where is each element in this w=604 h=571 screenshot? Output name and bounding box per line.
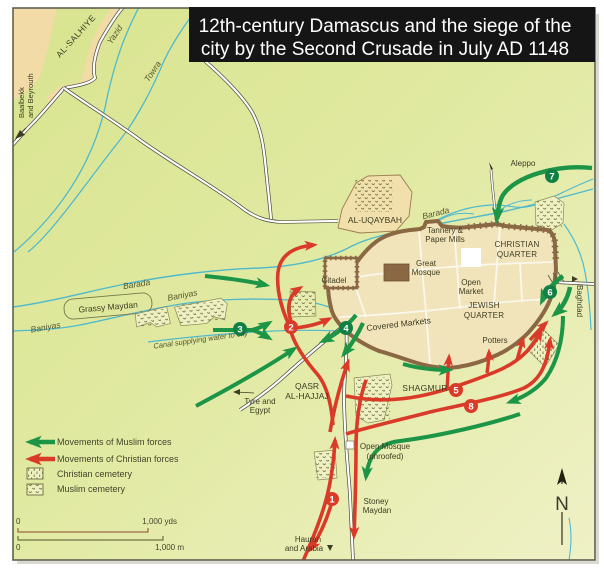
svg-text:Movements of Christian forces: Movements of Christian forces bbox=[57, 454, 179, 464]
svg-text:Citadel: Citadel bbox=[322, 276, 347, 285]
svg-text:0: 0 bbox=[16, 543, 21, 552]
svg-text:Mosque: Mosque bbox=[412, 268, 441, 277]
svg-text:7: 7 bbox=[549, 172, 554, 183]
svg-text:8: 8 bbox=[468, 402, 473, 413]
svg-text:QASR: QASR bbox=[295, 381, 319, 391]
svg-text:AL-UQAYBAH: AL-UQAYBAH bbox=[348, 215, 402, 225]
svg-text:and Beyrouth: and Beyrouth bbox=[26, 73, 35, 118]
svg-text:4: 4 bbox=[343, 324, 349, 335]
svg-text:Open Mosque: Open Mosque bbox=[360, 442, 411, 451]
svg-text:1,000 yds: 1,000 yds bbox=[142, 517, 177, 526]
svg-text:QUARTER: QUARTER bbox=[497, 250, 537, 259]
svg-text:1,000 m: 1,000 m bbox=[155, 543, 184, 552]
svg-text:0: 0 bbox=[16, 517, 21, 526]
svg-text:Paper Mills: Paper Mills bbox=[425, 235, 465, 244]
svg-text:Baghdad: Baghdad bbox=[575, 285, 584, 317]
svg-text:Baalbekk: Baalbekk bbox=[17, 87, 26, 118]
svg-text:city by the Second Crusade in: city by the Second Crusade in July AD 11… bbox=[201, 39, 569, 60]
svg-text:1: 1 bbox=[329, 495, 335, 506]
svg-text:2: 2 bbox=[288, 323, 293, 334]
svg-text:5: 5 bbox=[453, 386, 459, 397]
svg-text:6: 6 bbox=[547, 288, 552, 299]
svg-text:12th-century Damascus and the: 12th-century Damascus and the siege of t… bbox=[199, 16, 572, 37]
svg-text:Tyre and: Tyre and bbox=[244, 397, 275, 406]
svg-text:QUARTER: QUARTER bbox=[464, 311, 504, 320]
svg-text:JEWISH: JEWISH bbox=[468, 301, 499, 310]
svg-text:CHRISTIAN: CHRISTIAN bbox=[495, 240, 540, 249]
svg-text:Hauran: Hauran bbox=[295, 535, 321, 544]
svg-text:Movements of Muslim forces: Movements of Muslim forces bbox=[57, 437, 172, 447]
svg-text:(unroofed): (unroofed) bbox=[367, 452, 404, 461]
svg-text:Aleppo: Aleppo bbox=[511, 159, 536, 168]
svg-text:Stoney: Stoney bbox=[364, 497, 389, 506]
svg-text:Muslim cemetery: Muslim cemetery bbox=[57, 484, 126, 494]
svg-text:Christian cemetery: Christian cemetery bbox=[57, 469, 133, 479]
svg-text:Open: Open bbox=[461, 278, 481, 287]
svg-text:Maydan: Maydan bbox=[363, 506, 391, 515]
svg-text:Market: Market bbox=[459, 287, 484, 296]
svg-text:SHAGMUR: SHAGMUR bbox=[402, 383, 448, 393]
svg-text:and Arabia: and Arabia bbox=[285, 544, 324, 553]
svg-text:N: N bbox=[555, 494, 569, 515]
svg-text:AL-HAJJAJ: AL-HAJJAJ bbox=[285, 391, 328, 401]
svg-text:Egypt: Egypt bbox=[250, 406, 271, 415]
svg-text:Potters: Potters bbox=[482, 336, 507, 345]
svg-text:Tannery &: Tannery & bbox=[427, 226, 464, 235]
svg-text:Great: Great bbox=[416, 259, 437, 268]
